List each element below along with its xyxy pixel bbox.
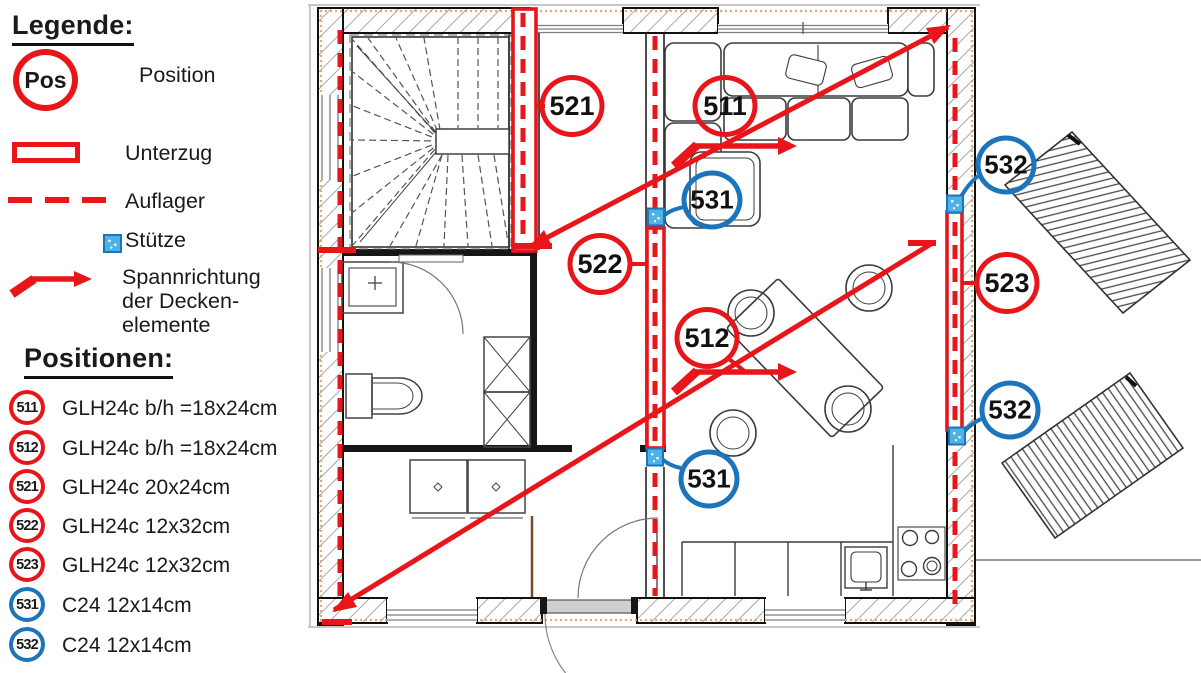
badge-522: 522 xyxy=(9,508,45,543)
marker-label: 532 xyxy=(984,150,1027,181)
badge-523: 523 xyxy=(9,547,45,582)
marker-label: 511 xyxy=(703,91,747,122)
appliances xyxy=(410,460,525,518)
column-532-top xyxy=(946,195,964,214)
marker-label: 521 xyxy=(549,91,594,122)
spec-521: GLH24c 20x24cm xyxy=(62,476,230,500)
marker-532-bottom: 532 xyxy=(980,381,1041,440)
stuetze-icon xyxy=(103,234,122,253)
spec-532: C24 12x14cm xyxy=(62,634,192,658)
marker-label: 532 xyxy=(988,395,1031,426)
legend-item-spannrichtung: Spannrichtung der Decken- elemente xyxy=(122,265,261,337)
positions-title: Positionen: xyxy=(24,343,173,379)
column-531-top xyxy=(647,208,665,227)
column-531-bottom xyxy=(646,448,664,467)
marker-label: 523 xyxy=(984,268,1029,299)
spec-523: GLH24c 12x32cm xyxy=(62,554,230,578)
marker-531-top: 531 xyxy=(682,171,743,230)
spec-512: GLH24c b/h =18x24cm xyxy=(62,437,277,461)
unterzug-icon xyxy=(12,142,80,163)
marker-512: 512 xyxy=(675,307,740,369)
marker-521: 521 xyxy=(540,75,605,137)
legend-item-stuetze: Stütze xyxy=(125,228,186,253)
marker-522: 522 xyxy=(568,233,633,295)
legend-item-position: Position xyxy=(139,63,216,88)
marker-label: 531 xyxy=(687,464,730,495)
marker-532-top: 532 xyxy=(976,136,1037,195)
marker-511: 511 xyxy=(693,75,758,137)
structural-floor-plan-page: 521 511 531 522 512 531 523 532 532 Lege… xyxy=(0,0,1201,673)
bathroom xyxy=(342,255,530,447)
marker-523: 523 xyxy=(975,252,1040,314)
badge-531: 531 xyxy=(9,587,45,622)
badge-521: 521 xyxy=(9,469,45,504)
chair xyxy=(710,410,756,456)
span-direction-icon xyxy=(6,262,106,300)
legend-item-unterzug: Unterzug xyxy=(125,141,212,166)
pos-circle-icon: Pos xyxy=(13,49,78,111)
marker-label: 512 xyxy=(684,323,729,354)
marker-531-bottom: 531 xyxy=(679,450,740,509)
column-532-bottom xyxy=(948,427,966,446)
legend-title: Legende: xyxy=(12,10,134,46)
marker-label: 531 xyxy=(690,185,733,216)
pos-symbol-label: Pos xyxy=(24,67,66,94)
badge-511: 511 xyxy=(9,390,45,425)
marker-label: 522 xyxy=(577,249,622,280)
spec-511: GLH24c b/h =18x24cm xyxy=(62,397,277,421)
badge-512: 512 xyxy=(9,430,45,465)
auflager-icon xyxy=(8,197,106,203)
legend-item-auflager: Auflager xyxy=(125,189,205,214)
staircase xyxy=(350,35,511,249)
spec-531: C24 12x14cm xyxy=(62,594,192,618)
badge-532: 532 xyxy=(9,627,45,662)
spec-522: GLH24c 12x32cm xyxy=(62,515,230,539)
doors xyxy=(532,516,658,673)
